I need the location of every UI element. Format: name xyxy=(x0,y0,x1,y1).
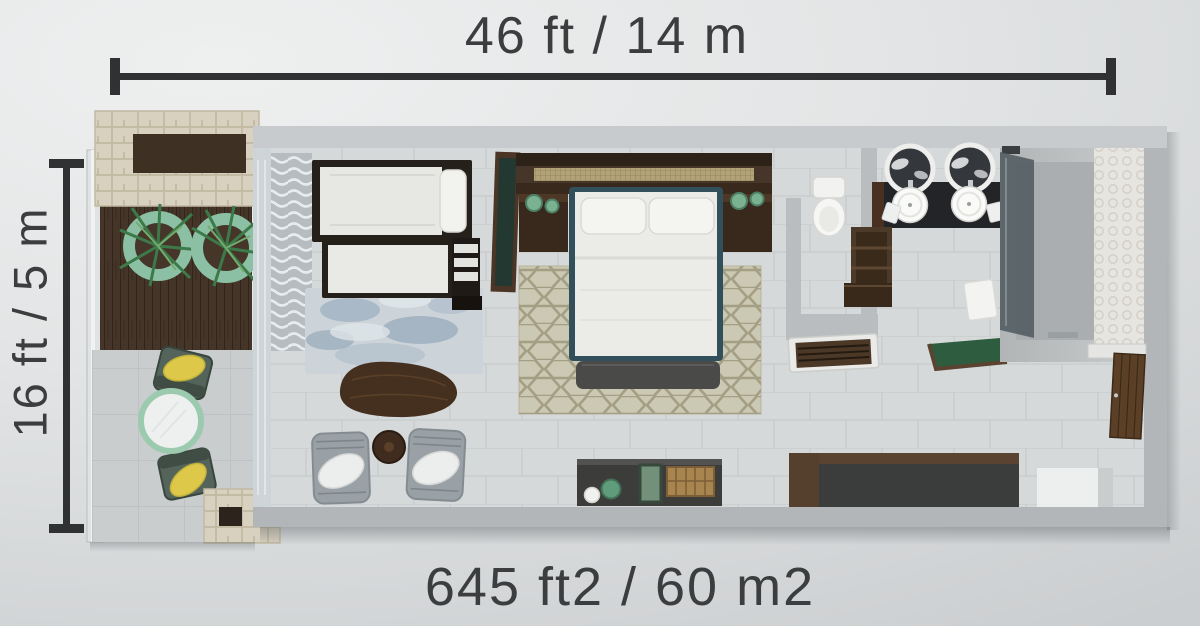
top-wall-face xyxy=(253,126,1167,148)
shower-head xyxy=(1002,146,1020,154)
armchair-right xyxy=(406,429,466,502)
decor-crate xyxy=(667,467,714,496)
balcony xyxy=(87,111,280,543)
walk-in-shower xyxy=(1000,146,1144,362)
foot-bench xyxy=(576,361,720,389)
floor-plan xyxy=(0,0,1200,626)
floor-shadow-bottom xyxy=(260,527,1170,545)
planter-wall xyxy=(95,111,259,206)
closet-console xyxy=(789,453,1019,507)
area-label: 645 ft2 / 60 m2 xyxy=(425,556,815,618)
window-wall xyxy=(253,148,271,507)
side-table xyxy=(373,431,405,463)
sink-right xyxy=(952,187,987,222)
bath-mat-white xyxy=(963,279,997,321)
width-dimension-label: 46 ft / 14 m xyxy=(465,6,749,66)
luggage-bench xyxy=(788,334,879,373)
depth-dimension-label: 16 ft / 5 m xyxy=(3,207,58,438)
nightstand-left xyxy=(519,194,568,252)
daybed xyxy=(312,160,472,242)
armchair-left xyxy=(312,432,370,504)
double-bed xyxy=(569,187,723,361)
table-lamp xyxy=(731,193,747,209)
console-cabinet xyxy=(577,459,722,506)
tv-panel xyxy=(491,152,521,293)
decor-vase-green xyxy=(602,480,621,499)
niche-shadow xyxy=(1098,468,1113,507)
pillow xyxy=(581,198,646,234)
trundle-bed xyxy=(322,240,454,298)
table-lamp xyxy=(751,193,764,206)
balcony-shadow xyxy=(90,542,255,552)
decor-frame xyxy=(640,465,661,502)
daybed-pillow xyxy=(440,170,466,232)
table-lamp xyxy=(546,200,559,213)
shelf-unit xyxy=(844,227,892,307)
toilet xyxy=(813,177,845,236)
floor-plan-render: 46 ft / 14 m 16 ft / 5 m 645 ft2 / 60 m2 xyxy=(0,0,1200,626)
decor-vase-white xyxy=(585,488,600,503)
pillow xyxy=(649,198,714,234)
floor-shadow-right xyxy=(1167,132,1181,530)
width-dimension-line xyxy=(118,73,1108,80)
outdoor-table xyxy=(141,391,201,451)
step-ladder xyxy=(452,238,482,310)
table-lamp xyxy=(526,195,542,211)
depth-dimension-line xyxy=(63,166,70,526)
shower-drain xyxy=(1048,332,1078,338)
nightstand-right xyxy=(723,193,772,253)
